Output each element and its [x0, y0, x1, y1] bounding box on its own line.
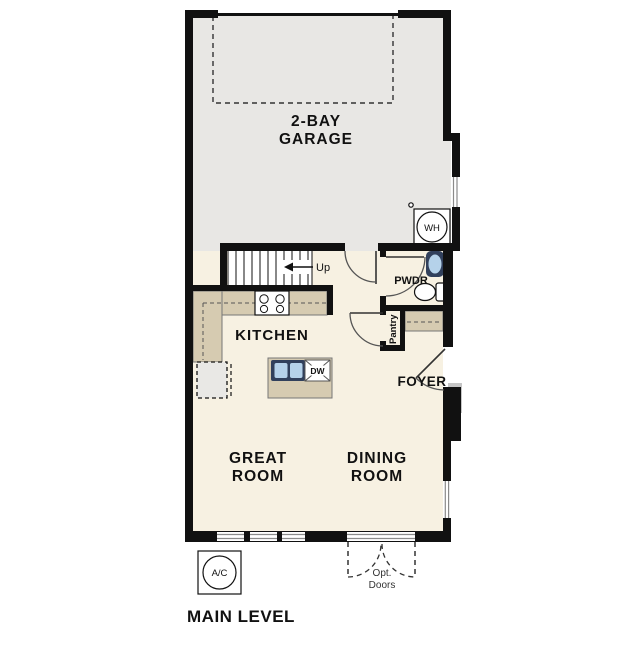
- pipe-dot: [409, 203, 413, 207]
- dishwasher-label: DW: [310, 366, 325, 376]
- left-wall: [185, 10, 193, 542]
- pwdr-bottom-wall: [380, 305, 453, 311]
- garage-label-line1: 2-BAY: [291, 113, 341, 130]
- garage-door-header: [218, 13, 398, 16]
- top-left-corner: [185, 10, 218, 18]
- refrigerator-space: [197, 362, 227, 398]
- optional-doors-label-line1: Opt.: [373, 568, 392, 579]
- great-room-label-line2: ROOM: [232, 468, 284, 485]
- right-wall-pwdr: [443, 251, 453, 347]
- foyer-label: FOYER: [397, 374, 446, 389]
- bathroom-sink-icon: [426, 251, 444, 277]
- optional-door-opening: [347, 532, 415, 541]
- powder-room-label: PWDR: [394, 275, 428, 287]
- right-wall-entry-block: [443, 387, 461, 441]
- dining-room-label-line1: DINING: [347, 450, 407, 467]
- stairs: [228, 250, 313, 287]
- great-room-windows: [217, 532, 305, 541]
- garage-window: [451, 177, 460, 207]
- ac-unit-label: A/C: [212, 568, 228, 579]
- pantry-bottom-wall: [380, 345, 405, 351]
- stair-side-wall: [220, 243, 227, 290]
- kitchen-sink-icon: [271, 360, 305, 381]
- garage-house-wall-right: [378, 243, 460, 251]
- great-room-label-line1: GREAT: [229, 450, 287, 467]
- water-heater-label: WH: [424, 223, 440, 234]
- counter-end-wall: [327, 285, 333, 315]
- pwdr-left-wall-a: [380, 243, 386, 257]
- main-level-title: MAIN LEVEL: [187, 607, 295, 626]
- kitchen-label: KITCHEN: [235, 327, 309, 344]
- floor-plan-page: 2-BAY GARAGE KITCHEN GREAT ROOM DINING R…: [0, 0, 640, 640]
- range-cooktop-icon: [255, 291, 289, 315]
- dining-room-label-line2: ROOM: [351, 468, 403, 485]
- pantry-label: Pantry: [388, 314, 399, 344]
- garage-label-line2: GARAGE: [279, 131, 353, 148]
- garage-house-wall-left: [222, 243, 345, 251]
- dining-window: [443, 481, 451, 518]
- foyer-shelf: [405, 311, 443, 331]
- kitchen-wall: [193, 285, 333, 291]
- counter-left-run: [193, 291, 222, 362]
- right-wall-c: [443, 441, 451, 481]
- optional-doors-label-line2: Doors: [369, 580, 396, 591]
- right-wall-a: [452, 139, 460, 178]
- stairs-up-label: Up: [316, 262, 330, 274]
- floor-plan-drawing: 2-BAY GARAGE KITCHEN GREAT ROOM DINING R…: [0, 0, 640, 640]
- right-wall-upper: [443, 10, 451, 139]
